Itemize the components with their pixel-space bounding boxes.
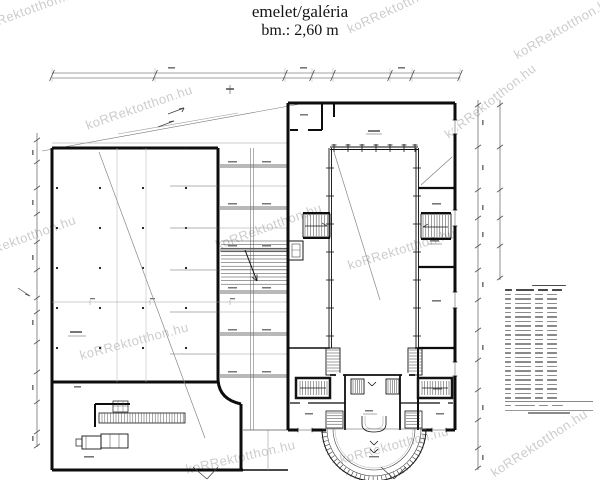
room-schedule-table: [505, 283, 593, 413]
floor-plan-sheet: emelet/galéria bm.: 2,60 m koRRektotthon…: [0, 0, 600, 480]
